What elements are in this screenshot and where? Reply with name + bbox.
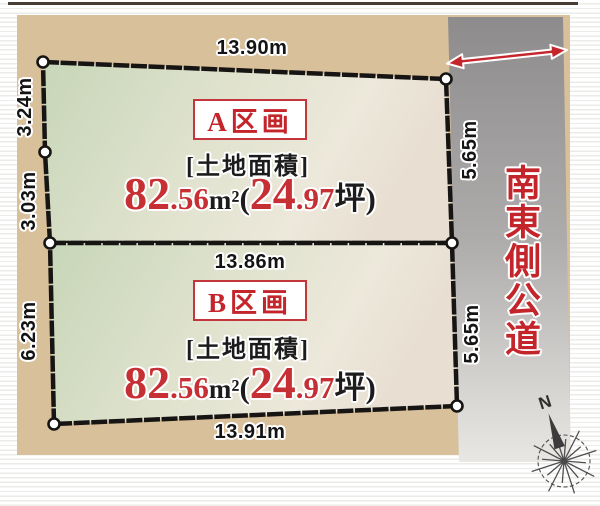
dim-bottom-b: 13.91m [195, 421, 305, 444]
plot-a-sqm-int: 82 [124, 168, 170, 219]
plot-a-area-value: 82.56m²(24.97坪) [55, 171, 445, 217]
plot-a-tsubo-frac: .97 [296, 181, 335, 216]
plot-b-tsubo-unit: 坪) [335, 370, 376, 405]
plot-b-paren-open: ( [239, 370, 249, 405]
dim-left-b: 6.23m [19, 299, 39, 363]
plot-b-tsubo-frac: .97 [296, 370, 335, 405]
land-plot-diagram: N 13.90m 3.24m 3.03m 5.65m 13.86m 6.23m … [0, 0, 600, 506]
plot-a-tsubo-int: 24 [250, 168, 296, 219]
dim-left-a-upper: 3.24m [15, 75, 35, 139]
plot-a-sqm-unit: m² [209, 185, 240, 215]
dim-left-a-lower: 3.03m [19, 169, 39, 233]
plot-b-name: B区画 [208, 281, 292, 320]
road-name-label: 南東側公道 [494, 164, 546, 359]
dim-right-b: 5.65m [462, 302, 482, 366]
dim-right-a: 5.65m [460, 118, 480, 182]
plot-b-sqm-frac: .56 [170, 370, 209, 405]
plot-b-name-box: B区画 [193, 280, 307, 321]
plot-b-area-value: 82.56m²(24.97坪) [55, 360, 445, 406]
plot-b-tsubo-int: 24 [250, 357, 296, 408]
plot-a-tsubo-unit: 坪) [335, 181, 376, 216]
plot-b-area-caption: [土地面積] [137, 329, 359, 364]
plot-b-sqm-int: 82 [124, 357, 170, 408]
dim-top-b: 13.86m [195, 251, 305, 274]
plot-a-name-box: A区画 [193, 99, 307, 140]
plot-a-paren-open: ( [239, 181, 249, 216]
plot-a-name: A区画 [207, 100, 293, 139]
dim-top-a: 13.90m [197, 37, 307, 60]
plot-a-sqm-frac: .56 [170, 181, 209, 216]
plot-b-sqm-unit: m² [209, 374, 240, 404]
